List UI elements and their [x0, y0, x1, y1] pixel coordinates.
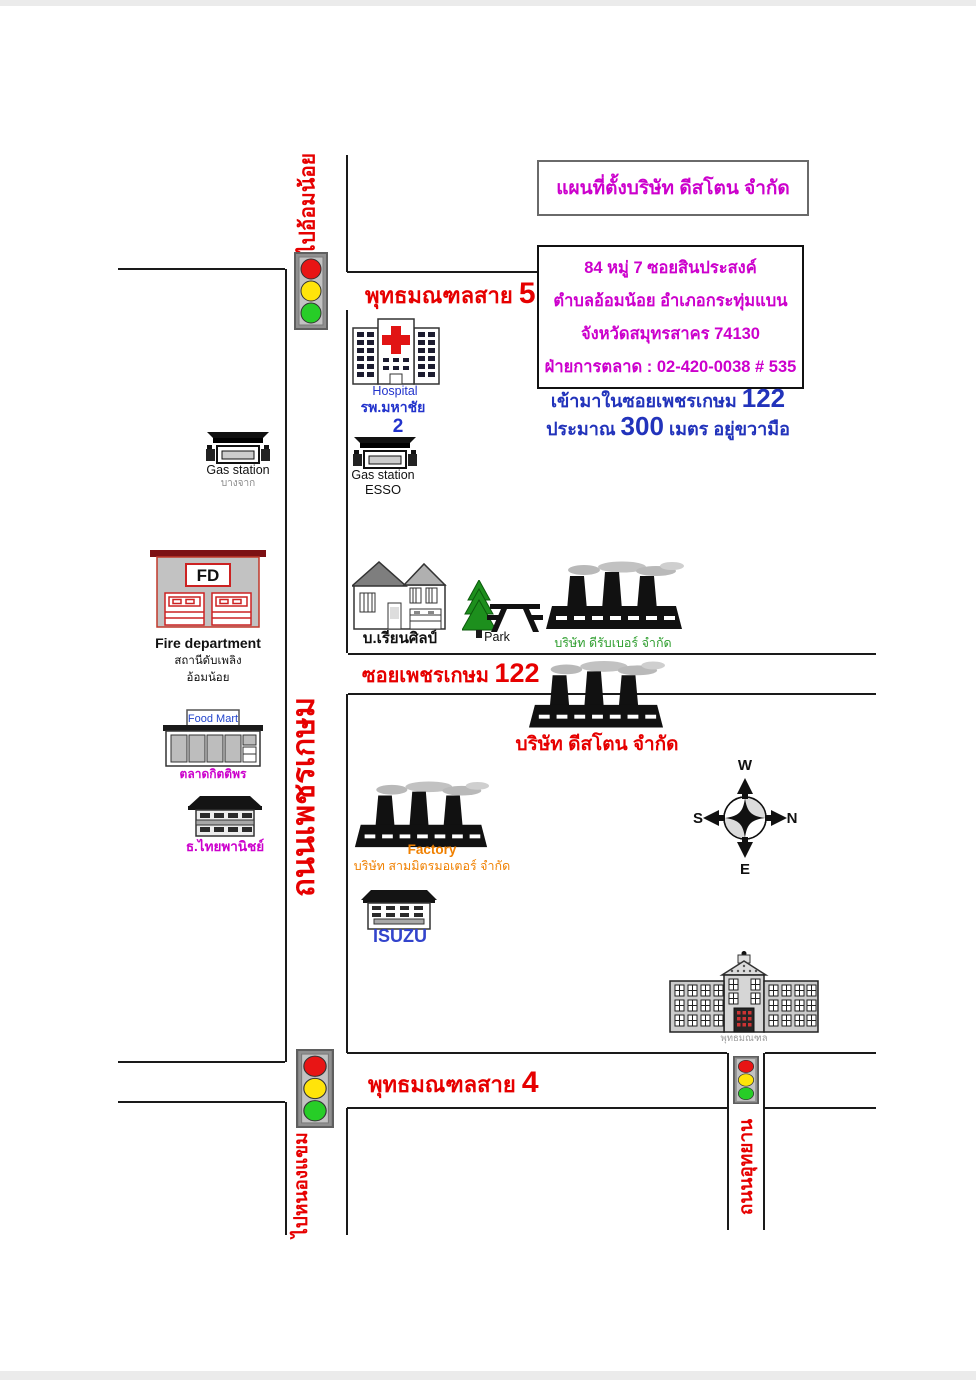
fire-label-en: Fire department	[155, 635, 261, 651]
government-building-icon	[668, 950, 820, 1034]
factory-icon	[352, 780, 490, 850]
gas-esso-label: Gas station	[351, 468, 414, 482]
sammitr-factory-label-en: Factory	[408, 842, 457, 858]
food-mart-icon: Food Mart	[163, 709, 263, 767]
compass-rose-icon: W E S N	[690, 756, 800, 876]
fire-label-th2: อ้อมน้อย	[187, 672, 230, 685]
traffic-light-icon	[296, 1049, 334, 1128]
hospital-number: 2	[393, 416, 404, 438]
deestone-label: บริษัท ดีสโตน จำกัด	[516, 734, 679, 756]
compass-south: S	[693, 810, 703, 827]
traffic-light-icon	[733, 1056, 759, 1104]
hospital-label-th: รพ.มหาชัย	[361, 399, 426, 415]
fire-station-icon: FD	[150, 549, 266, 631]
compass-east: E	[740, 861, 750, 876]
address-line: 84 หมู่ 7 ซอยสินประสงค์	[539, 255, 802, 281]
road-label-soi122: ซอยเพชรเกษม 122	[362, 658, 540, 691]
road-label-sai5: พุทธมณฑลสาย 5	[365, 277, 536, 313]
address-line: ฝ่ายการตลาด : 02-420-0038 # 535	[539, 354, 802, 380]
factory-icon	[527, 658, 665, 732]
compass-north: N	[787, 810, 798, 827]
d-rubber-label: บริษัท ดีรับเบอร์ จำกัด	[554, 636, 671, 650]
bank-label: ธ.ไทยพานิชย์	[186, 839, 264, 855]
direction-label-to-omnoi: ไปอ้อมน้อย	[292, 153, 325, 255]
road-label-utthayan: ถนนอุทยาน	[731, 1119, 761, 1215]
map-title: แผนที่ตั้งบริษัท ดีสโตน จำกัด	[556, 173, 790, 203]
hospital-icon	[352, 317, 440, 385]
map-title-box: แผนที่ตั้งบริษัท ดีสโตน จำกัด	[537, 160, 809, 216]
park-label: Park	[484, 630, 510, 644]
map-canvas: แผนที่ตั้งบริษัท ดีสโตน จำกัด 84 หมู่ 7 …	[0, 0, 976, 1380]
office-building-icon	[361, 887, 437, 931]
traffic-light-icon	[294, 252, 328, 330]
food-mart-sign-text: Food Mart	[188, 713, 238, 725]
bank-icon	[188, 794, 262, 838]
gas-esso-brand: ESSO	[365, 483, 401, 498]
compass-west: W	[738, 757, 753, 774]
address-line: ตำบลอ้อมน้อย อำเภอกระทุ่มแบน	[539, 288, 802, 314]
road-label-sai4: พุทธมณฑลสาย 4	[368, 1066, 539, 1102]
direction-label-to-nongkhaem: ไปหนองแขม	[286, 1132, 316, 1238]
art-school-label: บ.เรียนศิลป์	[363, 630, 437, 647]
house-icon	[352, 557, 447, 631]
gas-bangchak-brand: บางจาก	[221, 478, 255, 490]
gas-bangchak-label: Gas station	[206, 463, 269, 477]
road-label-phetkasem: ถนนเพชรเกษม	[278, 697, 328, 897]
sammitr-label-th: บริษัท สามมิตรมอเตอร์ จำกัด	[354, 859, 510, 873]
food-mart-label: ตลาดกิตติพร	[180, 768, 247, 782]
phutthamonthon-label: พุทธมณฑล	[720, 1034, 767, 1045]
picnic-table-icon	[487, 598, 543, 632]
fire-sign-text: FD	[197, 566, 220, 585]
address-line: จังหวัดสมุทรสาคร 74130	[539, 321, 802, 347]
address-box: 84 หมู่ 7 ซอยสินประสงค์ ตำบลอ้อมน้อย อำเ…	[537, 245, 804, 389]
hospital-label-en: Hospital	[372, 384, 417, 398]
factory-icon	[543, 560, 685, 632]
direction-note-line2: ประมาณ 300 เมตร อยู่ขวามือ	[546, 411, 790, 443]
isuzu-label: ISUZU	[373, 926, 427, 947]
fire-label-th1: สถานีดับเพลิง	[174, 655, 241, 668]
